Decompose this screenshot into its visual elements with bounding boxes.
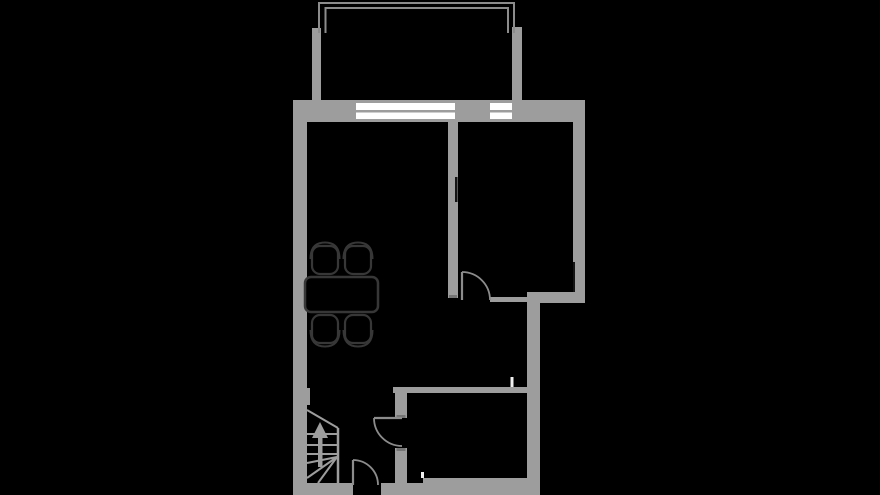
balcony-railing-top-inner — [325, 7, 509, 9]
wall-pilaster-left — [307, 388, 310, 405]
balcony-railing-left-outer — [318, 2, 320, 33]
floor-plan — [0, 0, 880, 495]
dining-table — [305, 277, 378, 312]
wall-top-middle — [455, 100, 490, 122]
balcony-railing-right-inner — [507, 7, 509, 33]
stairs-direction-arrow-shaft — [318, 437, 323, 467]
wall-bathroom-floor-edge — [423, 478, 540, 485]
entry-door-swing — [353, 460, 378, 485]
balcony-wall-left — [312, 28, 321, 100]
stairs-edge-diagonal — [307, 410, 338, 428]
stairs-direction-arrow-head — [312, 422, 328, 438]
wall-marker-lower — [421, 472, 424, 478]
wall-bathroom-door-stub-lower — [395, 448, 407, 483]
wall-notch-right — [573, 262, 575, 292]
window-bedroom-pane-bottom — [490, 113, 512, 120]
wall-marker-upper — [511, 377, 514, 387]
chair-seat-top-left — [312, 246, 338, 274]
wall-middle-divider — [448, 122, 458, 298]
window-living-pane-top — [356, 103, 455, 110]
balcony-wall-right — [512, 27, 522, 100]
bathroom-door-swing — [374, 418, 402, 446]
wall-bedroom-thin-segment — [490, 297, 527, 302]
wall-right-lower-exterior — [527, 292, 540, 495]
window-living-pane-bottom — [356, 113, 455, 120]
balcony-railing-top-outer — [318, 2, 515, 4]
chair-seat-top-right — [345, 246, 371, 274]
wall-hall-bathroom — [393, 387, 532, 393]
door-jamb-cap-bedroom — [449, 295, 457, 298]
balcony-railing-left-inner — [325, 7, 327, 33]
wall-top-left — [293, 100, 356, 122]
floor-plan-screen — [0, 0, 880, 495]
wall-bathroom-door-stub-upper — [395, 393, 407, 418]
chair-seat-bottom-right — [345, 315, 371, 343]
chair-seat-bottom-left — [312, 315, 338, 343]
wall-bottom-left — [293, 483, 353, 495]
balcony-railing-right-outer — [513, 2, 515, 33]
bedroom-door-swing — [462, 272, 490, 300]
door-jamb-cap-lower — [397, 448, 406, 451]
window-bedroom-pane-top — [490, 103, 512, 110]
wall-notch-middle — [455, 177, 458, 202]
